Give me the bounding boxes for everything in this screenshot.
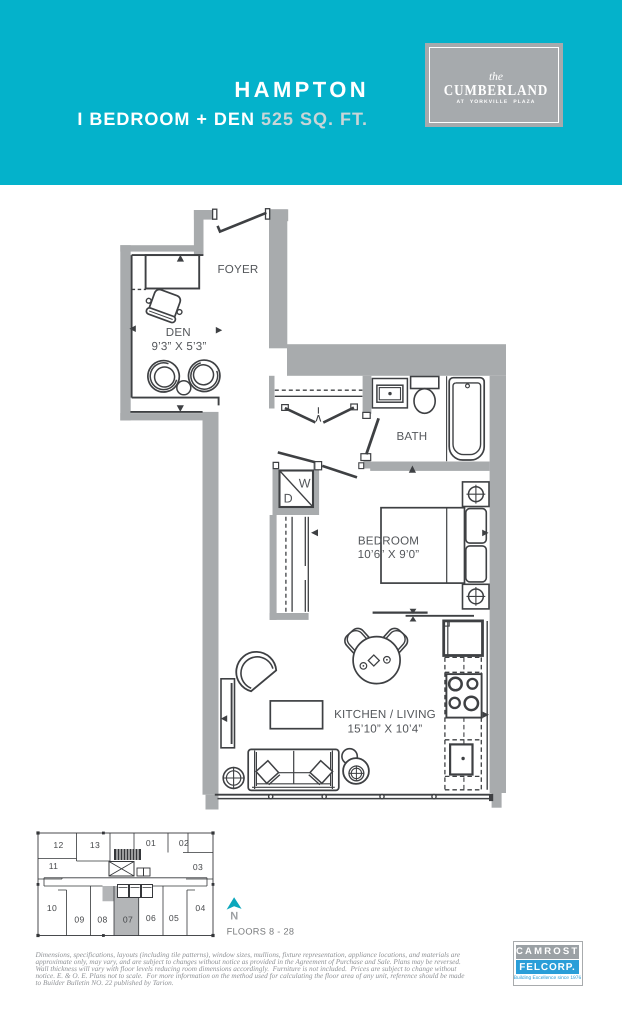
svg-text:10’6” X 9’0”: 10’6” X 9’0” <box>358 548 420 561</box>
svg-text:15’10” X 10’4”: 15’10” X 10’4” <box>348 723 423 736</box>
svg-text:KITCHEN / LIVING: KITCHEN / LIVING <box>334 708 436 721</box>
svg-text:02: 02 <box>179 838 189 848</box>
svg-text:12: 12 <box>53 840 63 850</box>
svg-text:03: 03 <box>193 862 203 872</box>
svg-text:FLOORS 8 - 28: FLOORS 8 - 28 <box>227 927 295 937</box>
svg-text:10: 10 <box>47 903 57 913</box>
svg-text:05: 05 <box>169 913 179 923</box>
svg-text:08: 08 <box>97 915 107 925</box>
svg-text:04: 04 <box>195 903 205 913</box>
svg-text:11: 11 <box>49 861 59 871</box>
svg-text:FOYER: FOYER <box>218 263 259 276</box>
svg-text:01: 01 <box>146 838 156 848</box>
svg-text:13: 13 <box>90 840 100 850</box>
svg-text:W: W <box>299 476 311 490</box>
svg-text:BATH: BATH <box>396 430 427 443</box>
svg-text:DEN: DEN <box>166 326 191 339</box>
svg-text:BEDROOM: BEDROOM <box>358 534 419 547</box>
svg-text:09: 09 <box>74 915 84 925</box>
svg-text:07: 07 <box>123 915 133 925</box>
svg-text:D: D <box>284 491 293 505</box>
svg-text:06: 06 <box>146 913 156 923</box>
svg-text:9’3” X 5’3”: 9’3” X 5’3” <box>151 340 206 353</box>
svg-text:N: N <box>230 911 238 923</box>
